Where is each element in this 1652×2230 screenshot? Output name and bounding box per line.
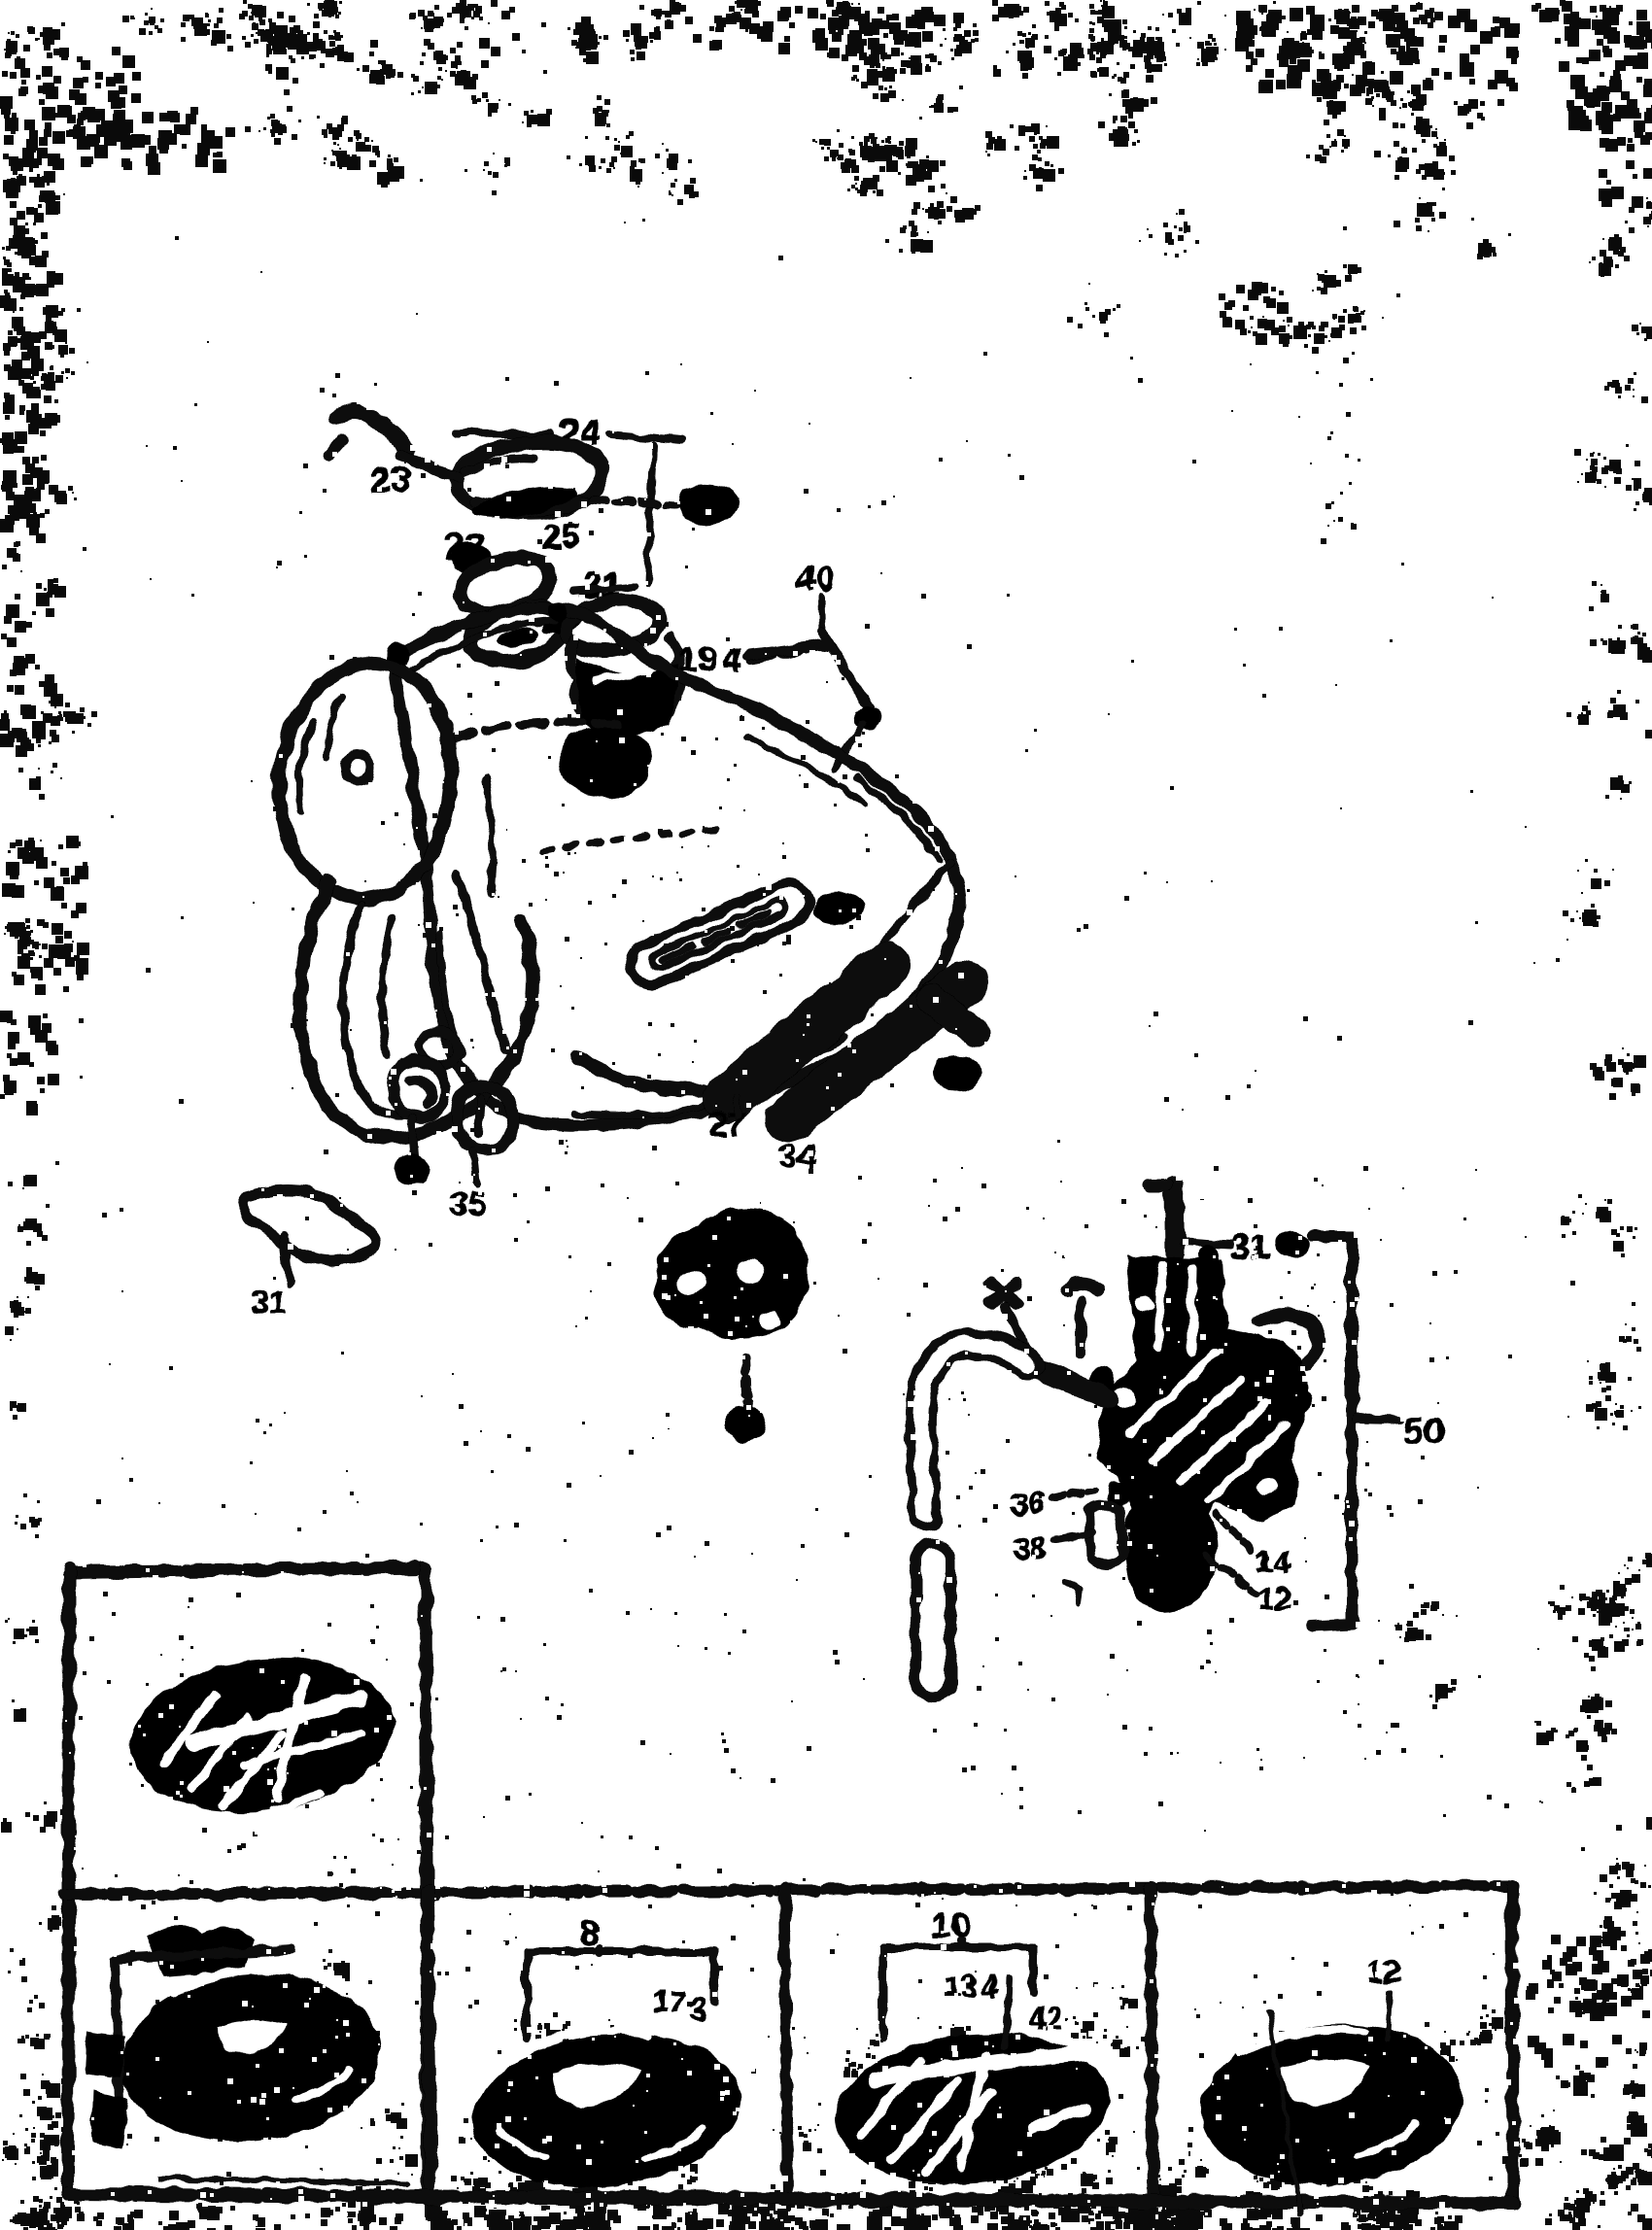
svg-text:50: 50 (1403, 1412, 1444, 1453)
svg-text:3: 3 (690, 1994, 706, 2026)
svg-text:36: 36 (1011, 1486, 1046, 1521)
svg-text:4: 4 (723, 640, 742, 680)
svg-text:34: 34 (779, 1139, 816, 1176)
svg-text:17: 17 (653, 1986, 685, 2018)
svg-text:42: 42 (1028, 2001, 1063, 2036)
svg-text:23: 23 (371, 460, 410, 499)
svg-text:38: 38 (1013, 1530, 1048, 1565)
svg-text:31: 31 (1230, 1227, 1269, 1267)
svg-text:13: 13 (945, 1971, 977, 2003)
svg-text:12: 12 (1366, 1954, 1401, 1989)
svg-text:8: 8 (579, 1913, 599, 1953)
svg-text:4: 4 (981, 1971, 998, 2003)
svg-text:31: 31 (251, 1285, 288, 1321)
svg-text:25: 25 (542, 516, 581, 556)
svg-text:14: 14 (1256, 1544, 1291, 1579)
svg-text:10: 10 (931, 1905, 970, 1945)
svg-text:12: 12 (1257, 1581, 1292, 1616)
svg-text:40: 40 (797, 559, 836, 599)
